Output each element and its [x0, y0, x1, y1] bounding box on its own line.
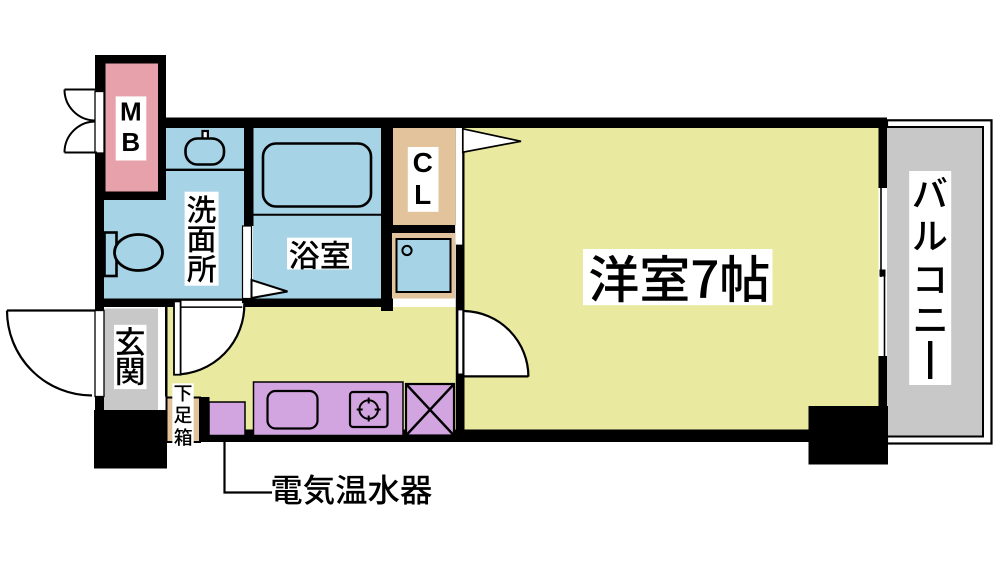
svg-text:C: C — [413, 147, 433, 178]
svg-text:B: B — [121, 127, 140, 157]
svg-text:L: L — [414, 179, 431, 210]
svg-text:M: M — [120, 97, 142, 127]
